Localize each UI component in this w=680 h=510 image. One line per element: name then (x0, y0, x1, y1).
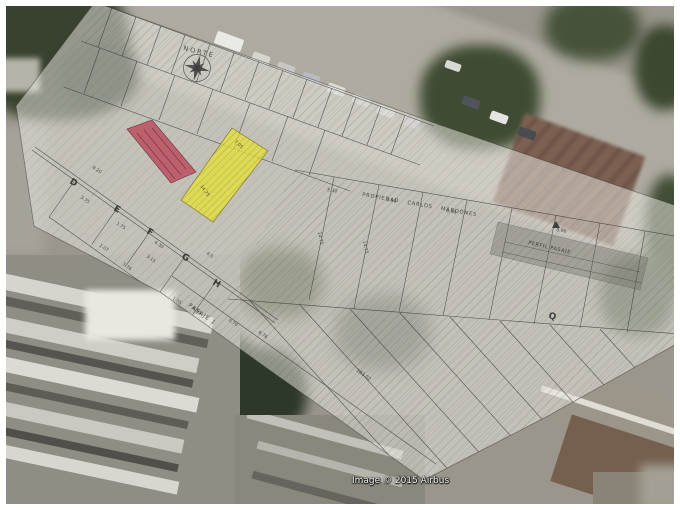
imagery-attribution: Image © 2015 Airbus (352, 476, 449, 486)
screenshot-page: NORTE PROPIEDAD CARLOS MARDONES PERFIL P… (0, 0, 680, 510)
survey-plan-overlay: NORTE PROPIEDAD CARLOS MARDONES PERFIL P… (6, 6, 674, 504)
aerial-photo: NORTE PROPIEDAD CARLOS MARDONES PERFIL P… (6, 6, 674, 504)
